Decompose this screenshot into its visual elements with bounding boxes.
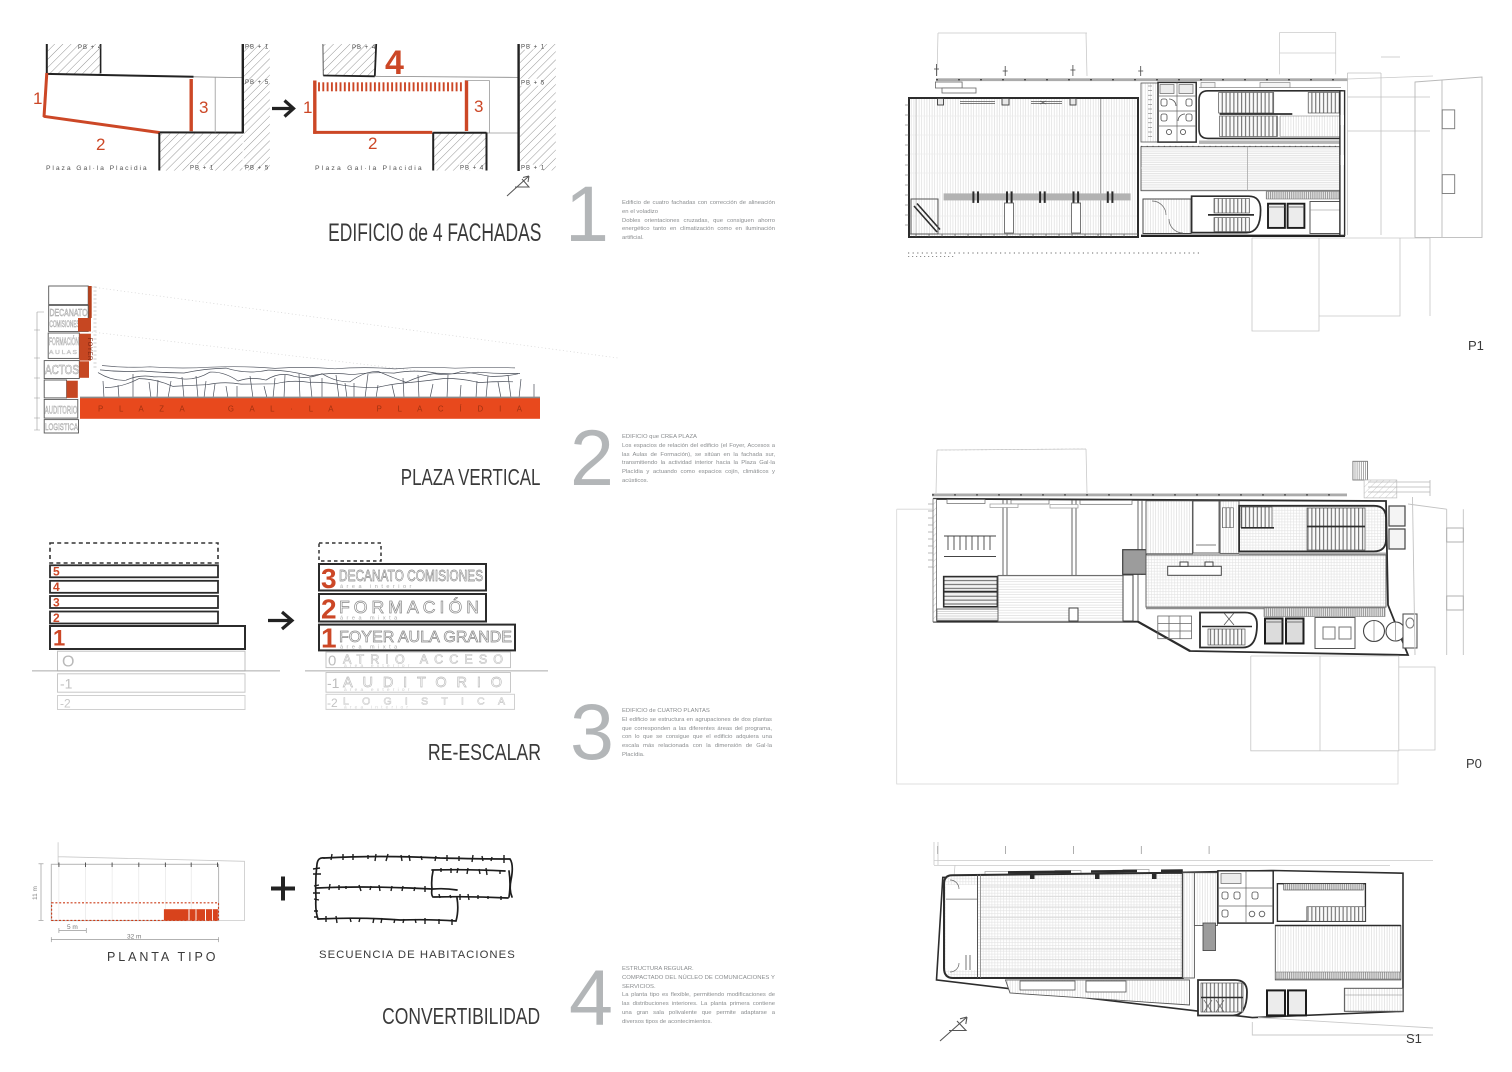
svg-text:área mixta: área mixta: [340, 645, 401, 651]
svg-text:O: O: [62, 654, 74, 671]
svg-text:1: 1: [303, 98, 312, 117]
svg-text:PB + 1: PB + 1: [521, 166, 545, 172]
svg-text:ACTOS: ACTOS: [45, 362, 79, 377]
svg-text:PB + 1: PB + 1: [245, 45, 269, 51]
svg-text:AUDITORIO: AUDITORIO: [45, 405, 78, 417]
svg-text:-2: -2: [327, 696, 338, 710]
svg-text:2: 2: [96, 135, 105, 154]
svg-text:1: 1: [321, 623, 337, 654]
svg-text:área mixta: área mixta: [340, 616, 401, 622]
svg-text:3: 3: [321, 563, 337, 594]
svg-text:P L A Z A G A L · L A P: P L A Z A G A L · L A P L A C Í D I A: [98, 405, 523, 414]
svg-text:COMISIONES: COMISIONES: [50, 319, 80, 329]
svg-text:-1: -1: [327, 675, 340, 691]
svg-text:PB + 4: PB + 4: [78, 45, 102, 51]
svg-text:4: 4: [53, 580, 60, 594]
svg-text:PB + 1: PB + 1: [190, 166, 214, 172]
svg-text:FOYER AULA GRANDE: FOYER AULA GRANDE: [339, 629, 512, 646]
svg-text:Plaza Gal·la Placidia: Plaza Gal·la Placidia: [46, 165, 149, 172]
svg-text:Plaza Gal·la Placidia: Plaza Gal·la Placidia: [315, 165, 424, 172]
svg-text:PB + 5: PB + 5: [521, 81, 545, 87]
svg-text:2: 2: [321, 594, 337, 625]
svg-text:3: 3: [474, 97, 483, 116]
svg-text:2: 2: [368, 134, 377, 153]
svg-text:FOYER: FOYER: [86, 338, 93, 361]
svg-text:32 m: 32 m: [127, 933, 141, 940]
svg-text:área interior: área interior: [340, 584, 415, 590]
svg-text:-2: -2: [60, 697, 71, 711]
svg-text:A U L A S: A U L A S: [49, 350, 77, 356]
svg-text:FORMACIÓN: FORMACIÓN: [49, 335, 79, 348]
svg-text:1: 1: [53, 626, 65, 651]
svg-text:PB + 1: PB + 1: [521, 45, 545, 51]
svg-text:2: 2: [53, 611, 60, 625]
svg-text:área exterior: área exterior: [344, 663, 413, 669]
svg-text:5: 5: [53, 565, 60, 579]
svg-text:PB + 4: PB + 4: [352, 45, 376, 51]
svg-text:0: 0: [328, 653, 336, 670]
svg-text:5 m: 5 m: [67, 924, 78, 931]
svg-text:-1: -1: [60, 676, 73, 692]
svg-text:área exterior: área exterior: [344, 687, 413, 693]
svg-text:3: 3: [53, 595, 60, 609]
svg-text:PB + 5: PB + 5: [245, 80, 269, 86]
svg-text:DECANATO: DECANATO: [50, 307, 88, 319]
svg-text:LOGISTICA: LOGISTICA: [45, 422, 78, 433]
svg-text:PB + 4: PB + 4: [460, 166, 484, 172]
svg-text:área interior: área interior: [344, 705, 411, 711]
svg-text:1: 1: [33, 89, 42, 108]
svg-text:DECANATO COMISIONES: DECANATO COMISIONES: [339, 568, 483, 585]
svg-text:FORMACIÓN: FORMACIÓN: [339, 596, 483, 617]
svg-text:3: 3: [199, 98, 208, 117]
svg-text:PB + 5: PB + 5: [245, 166, 269, 172]
svg-text:11 m: 11 m: [32, 886, 39, 900]
